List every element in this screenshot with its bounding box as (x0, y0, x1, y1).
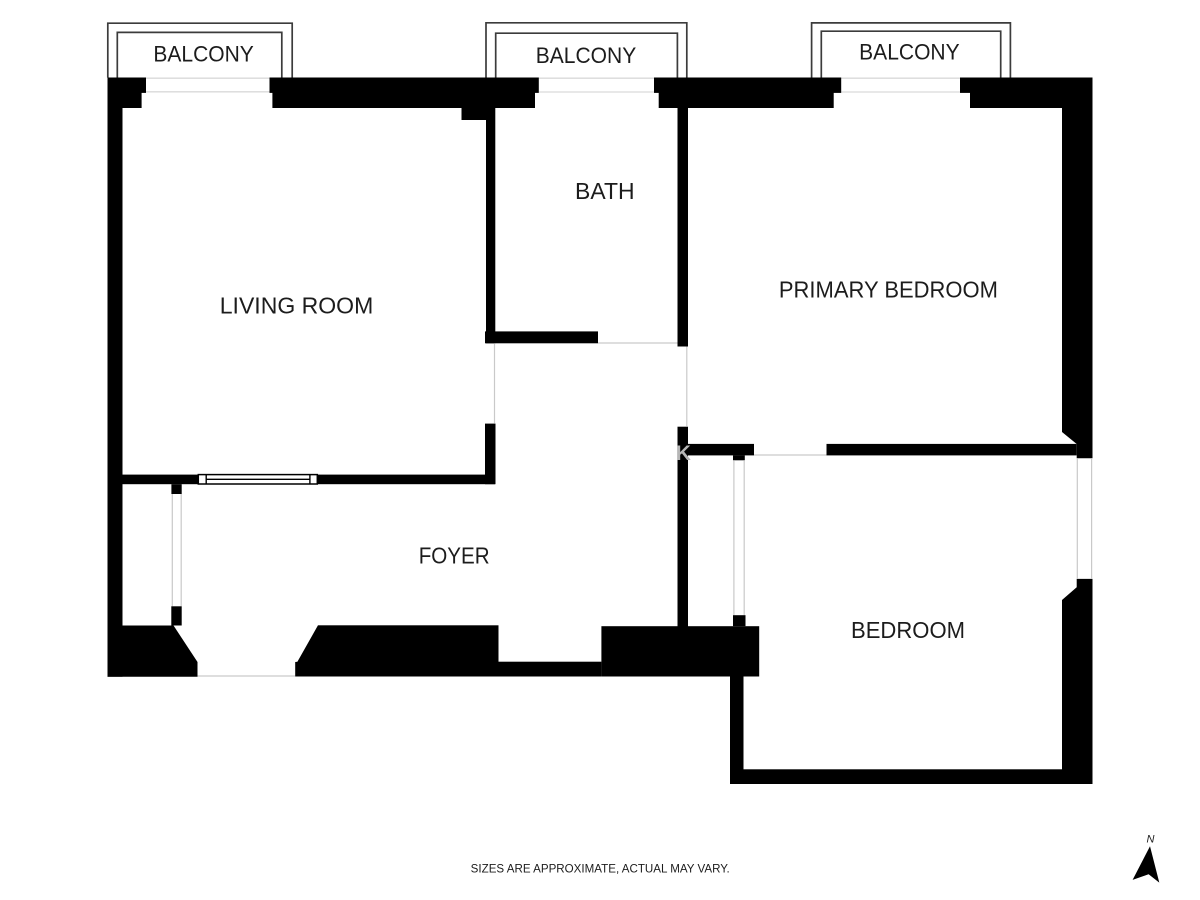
svg-text:FOYER: FOYER (419, 543, 490, 569)
svg-text:SIZES ARE APPROXIMATE, ACTUAL: SIZES ARE APPROXIMATE, ACTUAL MAY VARY. (471, 863, 730, 875)
svg-text:PRIMARY BEDROOM: PRIMARY BEDROOM (779, 277, 998, 303)
svg-text:BALCONY: BALCONY (153, 42, 254, 67)
svg-text:BALCONY: BALCONY (536, 43, 637, 68)
svg-text:N: N (1147, 833, 1155, 845)
svg-text:BATH: BATH (575, 178, 635, 204)
svg-text:LIVING ROOM: LIVING ROOM (220, 293, 374, 319)
svg-text:BEDROOM: BEDROOM (851, 617, 965, 643)
svg-text:K: K (676, 442, 691, 465)
svg-text:BALCONY: BALCONY (859, 40, 960, 65)
